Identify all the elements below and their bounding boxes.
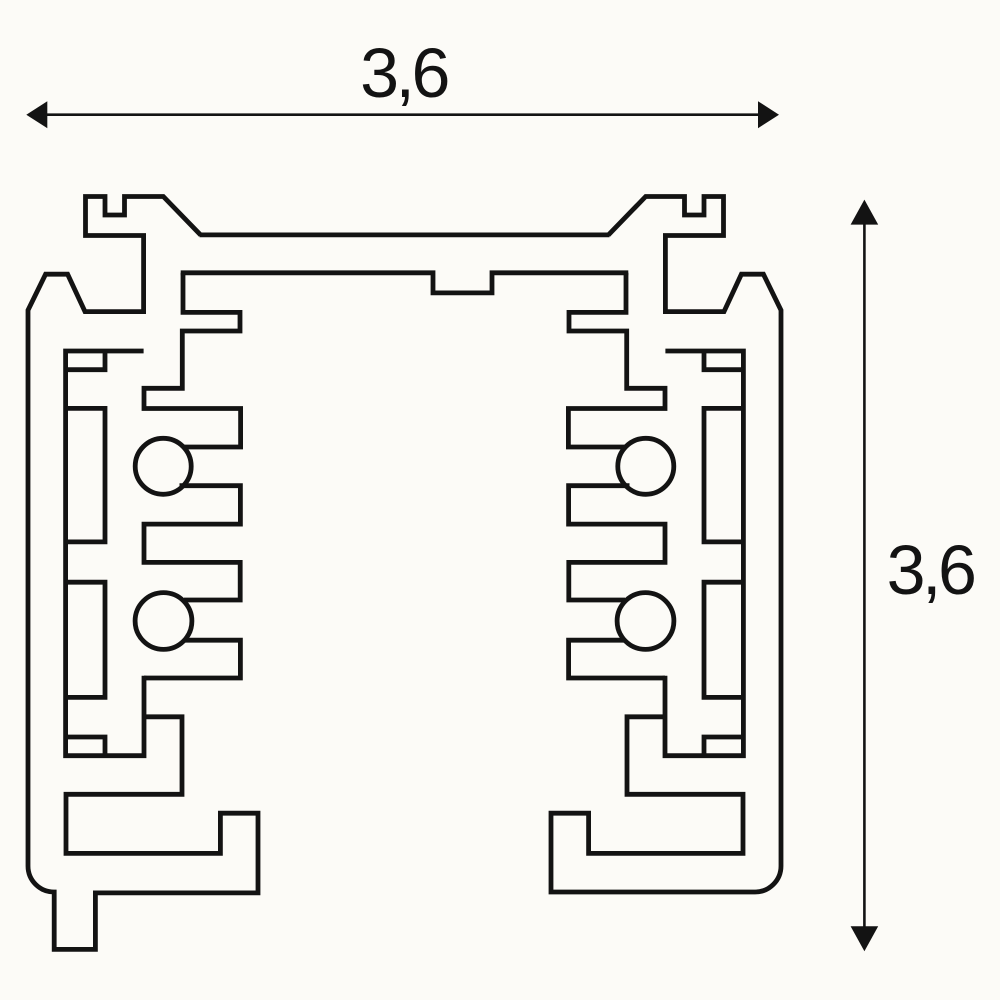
svg-text:3,6: 3,6 xyxy=(887,531,974,609)
svg-text:3,6: 3,6 xyxy=(360,34,447,112)
